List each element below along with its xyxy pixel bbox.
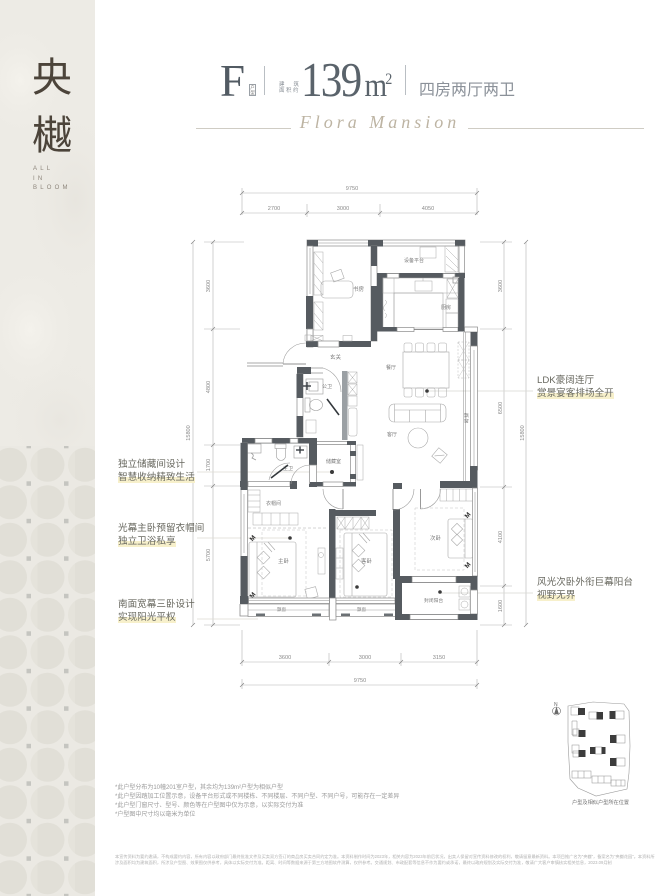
svg-text:1600: 1600 <box>498 600 504 612</box>
svg-text:M: M <box>464 511 473 520</box>
svg-text:4100: 4100 <box>498 531 504 543</box>
svg-text:15800: 15800 <box>520 425 526 441</box>
svg-text:次卧: 次卧 <box>430 534 442 542</box>
svg-text:2700: 2700 <box>268 206 280 212</box>
svg-text:飘: 飘 <box>464 413 469 419</box>
svg-text:5700: 5700 <box>206 549 212 561</box>
svg-text:M: M <box>464 561 473 570</box>
svg-text:3000: 3000 <box>359 655 371 661</box>
svg-text:储藏室: 储藏室 <box>326 458 341 465</box>
svg-text:客厅: 客厅 <box>387 431 397 438</box>
svg-text:3150: 3150 <box>433 655 445 661</box>
svg-text:主卧: 主卧 <box>278 557 290 565</box>
svg-text:15800: 15800 <box>186 425 192 441</box>
svg-text:N: N <box>554 702 558 708</box>
svg-text:厨房: 厨房 <box>441 304 451 311</box>
svg-text:3000: 3000 <box>337 206 349 212</box>
svg-text:飘窗: 飘窗 <box>357 606 366 613</box>
svg-text:窗: 窗 <box>464 418 469 425</box>
svg-text:飘窗: 飘窗 <box>277 606 286 613</box>
svg-text:衣帽间: 衣帽间 <box>266 500 281 507</box>
svg-text:M: M <box>249 534 258 543</box>
svg-text:餐厅: 餐厅 <box>386 364 396 371</box>
svg-text:3600: 3600 <box>498 280 504 292</box>
svg-text:设备平台: 设备平台 <box>404 257 424 264</box>
svg-text:9750: 9750 <box>354 678 366 684</box>
svg-text:6500: 6500 <box>498 402 504 414</box>
svg-text:1700: 1700 <box>206 459 212 471</box>
svg-text:公卫: 公卫 <box>322 384 332 390</box>
svg-text:3600: 3600 <box>279 655 291 661</box>
svg-text:户型及相似户型所在位置: 户型及相似户型所在位置 <box>572 798 629 806</box>
svg-text:3600: 3600 <box>206 280 212 292</box>
svg-text:玄关: 玄关 <box>330 353 342 361</box>
svg-text:9750: 9750 <box>346 186 358 192</box>
svg-text:客卧: 客卧 <box>361 557 373 565</box>
svg-text:封闭阳台: 封闭阳台 <box>424 597 443 604</box>
svg-text:书房: 书房 <box>353 285 365 293</box>
svg-text:4800: 4800 <box>206 381 212 393</box>
svg-text:4050: 4050 <box>422 206 434 212</box>
